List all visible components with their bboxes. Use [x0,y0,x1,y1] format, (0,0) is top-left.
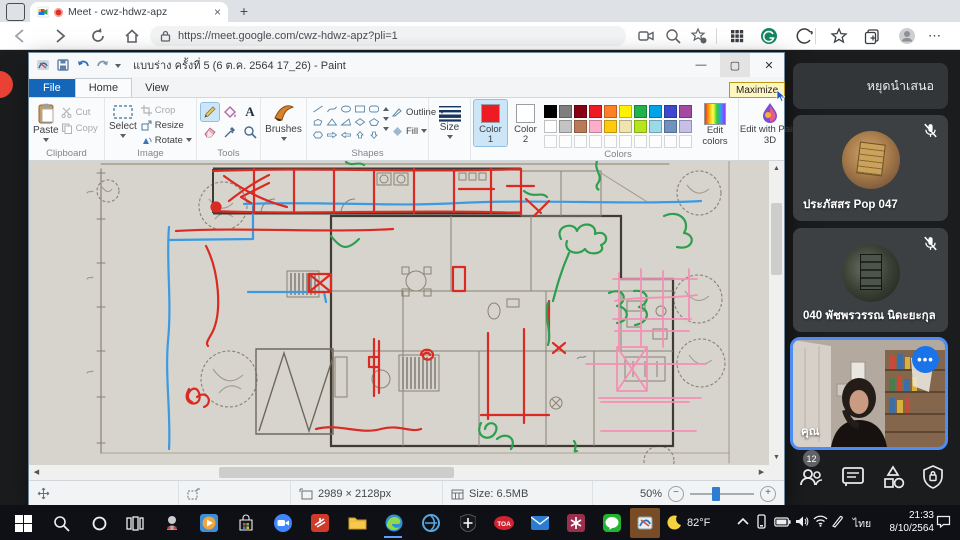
dimensions-icon [299,488,313,500]
file-explorer-icon[interactable] [342,508,372,538]
palette-empty-slot[interactable] [589,135,602,148]
selection-size-icon [187,488,201,500]
palette-color[interactable] [649,105,662,118]
select-button[interactable]: Select [109,100,137,147]
scroll-right-icon[interactable]: ▶ [754,465,769,480]
file-size: Size: 6.5MB [469,488,528,500]
activities-panel-icon[interactable] [878,462,908,492]
tray-chevron-icon[interactable] [737,517,749,527]
outline-icon [392,107,403,117]
group-colors: Color 1 Color 2 Colors Edit colors [471,98,739,160]
palette-color[interactable] [604,105,617,118]
fill-bucket-icon [223,105,237,119]
clock-tray-item[interactable]: 21:33 8/10/2564 [874,509,934,535]
group-brushes: Brushes [261,98,307,160]
paint-status-bar: 2989 × 2128px Size: 6.5MB 50% − + [29,480,784,506]
shape-right-arrow-icon[interactable] [325,129,338,141]
self-more-options-button[interactable]: ••• [912,346,939,373]
vertical-scrollbar[interactable]: ▲ ▼ [769,161,784,465]
host-controls-icon[interactable] [918,462,948,492]
tab-title: Meet - cwz-hdwz-apz [68,6,209,18]
color2-button[interactable]: Color 2 [509,100,542,146]
home-icon[interactable] [122,26,142,46]
mail-app-icon[interactable] [525,508,555,538]
floorplan-drawing [29,161,769,465]
palette-color[interactable] [589,120,602,133]
volume-tray-icon[interactable] [795,515,809,528]
vertical-scroll-thumb[interactable] [771,203,782,275]
language-indicator[interactable]: ไทย [849,515,875,532]
palette-color[interactable] [544,105,557,118]
shapes-label: Shapes [307,148,428,159]
paste-button[interactable]: Paste [33,100,59,142]
screen: { "browser": { "tab_title": "Meet - cwz-… [0,0,960,540]
browser-tab-bar: Meet - cwz-hdwz-apz × + [0,0,960,22]
palette-color[interactable] [619,120,632,133]
zoom-in-button[interactable]: + [760,486,776,502]
tab-close-icon[interactable]: × [214,6,221,18]
quick-access-caret-icon[interactable] [115,64,121,68]
cut-icon [61,107,73,118]
shape-oval-icon[interactable] [339,103,352,115]
color2-swatch [516,104,535,123]
paint3d-icon [761,102,779,124]
close-button[interactable]: ✕ [754,53,784,77]
palette-empty-slot[interactable] [574,135,587,148]
paint-app-icon [35,57,51,73]
line-app-icon[interactable] [597,508,627,538]
task-view-button[interactable] [120,508,150,538]
self-view-tile[interactable]: คุณ ••• [790,337,948,450]
tab-file[interactable]: File [29,79,75,97]
copy-button[interactable]: Copy [61,121,98,135]
media-player-icon[interactable] [194,508,224,538]
shapes-scroll-down-icon[interactable] [383,117,389,121]
lock-icon [160,30,171,42]
forward-icon[interactable] [50,26,70,46]
participant-name: 040 พัชพรวรรณ นิดะยะกุล [803,307,936,325]
shape-right-triangle-icon[interactable] [339,116,352,128]
resize-icon [141,120,152,131]
toolbar-divider [815,28,816,44]
zoom-slider-thumb[interactable] [712,487,720,501]
shape-triangle-icon[interactable] [325,116,338,128]
colors-label: Colors [544,149,692,160]
palette-empty-slot[interactable] [664,135,677,148]
brushes-icon [272,102,296,124]
favorites-settings-icon[interactable] [689,26,709,46]
pen-tray-icon[interactable] [831,515,844,528]
group-clipboard: Paste Cut Copy Clipboard [29,98,105,160]
group-paint3d: Edit with Paint 3D [739,98,801,160]
apps-grid-icon[interactable] [727,26,747,46]
palette-color[interactable] [544,120,557,133]
magnifier-tool[interactable] [241,123,259,141]
clock-time: 21:33 [874,509,934,522]
palette-color[interactable] [559,120,572,133]
scroll-up-icon[interactable]: ▲ [769,161,784,176]
shapes-grid [311,98,380,141]
toa-app-icon[interactable]: TOA [489,508,519,538]
horizontal-scroll-thumb[interactable] [219,467,454,478]
redo-icon[interactable] [95,57,111,73]
start-button[interactable] [8,508,38,538]
svg-text:TOA: TOA [497,521,511,528]
crop-icon [141,105,152,116]
file-size-section: Size: 6.5MB [443,481,593,506]
asterisk-app-icon[interactable] [561,508,591,538]
color1-button[interactable]: Color 1 [474,100,507,146]
undo-icon[interactable] [75,57,91,73]
magnifier-icon [243,125,257,139]
palette-empty-slot[interactable] [649,135,662,148]
battery-tray-icon[interactable] [774,517,791,527]
maximize-button[interactable]: ▢ [720,53,750,77]
tools-label: Tools [197,148,260,159]
temperature-label: 82°F [687,517,710,529]
palette-color[interactable] [574,105,587,118]
shape-rounded-rectangle-icon[interactable] [367,103,380,115]
palette-color[interactable] [574,120,587,133]
resize-button[interactable]: Resize [141,118,192,132]
palette-empty-slot[interactable] [559,135,572,148]
select-icon [112,103,134,121]
size-button[interactable]: Size [429,98,470,139]
palette-empty-slot[interactable] [634,135,647,148]
address-bar[interactable]: https://meet.google.com/cwz-hdwz-apz?pli… [150,26,626,46]
mic-off-icon [922,122,939,139]
paint-titlebar[interactable]: แบบร่าง ครั้งที่ 5 (6 ต.ค. 2564 17_26) -… [29,53,784,77]
color1-swatch [481,104,500,123]
selection-size-section [179,481,291,506]
action-center-icon[interactable] [936,515,951,528]
fill-tool[interactable] [221,103,239,121]
sketchup-icon[interactable] [305,508,335,538]
image-dimensions-section: 2989 × 2128px [291,481,443,506]
pencil-icon [203,105,217,119]
phone-tray-icon[interactable] [757,514,766,529]
group-tools: A Tools [197,98,261,160]
grammar-extension-icon[interactable] [759,26,779,46]
palette-empty-slot[interactable] [679,135,692,148]
shape-left-arrow-icon[interactable] [339,129,352,141]
palette-empty-slot[interactable] [544,135,557,148]
color-picker-tool[interactable] [221,123,239,141]
text-a-icon: A [245,104,254,120]
browser-menu-icon[interactable]: ⋯ [928,28,950,44]
group-size: Size [429,98,471,160]
palette-color[interactable] [664,105,677,118]
palette-color[interactable] [664,120,677,133]
scrollbar-corner [769,465,784,480]
paste-icon [37,103,55,125]
zoom-app-icon[interactable] [268,508,298,538]
horizontal-scrollbar[interactable]: ◀ ▶ [29,465,769,480]
palette-color[interactable] [619,105,632,118]
participant-avatar [842,131,900,189]
self-label: คุณ [801,423,819,441]
extension-c-icon[interactable] [795,26,815,46]
palette-color[interactable] [559,105,572,118]
fill-icon [392,126,403,136]
collections-icon[interactable] [862,26,882,46]
microsoft-store-icon[interactable] [231,508,261,538]
eyedropper-icon [223,125,237,139]
eraser-tool[interactable] [201,123,219,141]
image-label: Image [105,148,196,159]
text-tool[interactable]: A [241,103,259,121]
shape-polygon-icon[interactable] [311,116,324,128]
shape-down-arrow-icon[interactable] [367,129,380,141]
file-size-icon [451,488,464,500]
ribbon: Paste Cut Copy Clipboard Select Crop Res… [29,98,784,161]
zoom-level: 50% [640,488,662,500]
zoom-page-icon[interactable] [663,26,683,46]
chat-panel-icon[interactable] [838,462,868,492]
zoom-out-button[interactable]: − [668,486,684,502]
weather-tray-item[interactable]: 82°F [666,508,710,538]
shapes-scroll-up-icon[interactable] [383,107,389,111]
people-count-badge: 12 [803,450,820,467]
clock-date: 8/10/2564 [874,522,934,535]
shape-rectangle-icon[interactable] [353,103,366,115]
cursor-position-section [29,481,179,506]
rotate-button[interactable]: Rotate [141,133,192,147]
wifi-tray-icon[interactable] [813,515,828,527]
palette-empty-slot[interactable] [619,135,632,148]
recording-dot-icon [54,8,63,17]
moon-weather-icon [666,515,682,531]
tab-actions-icon[interactable] [6,3,25,21]
participant-tile[interactable]: ประภัสสร Pop 047 [793,115,948,221]
cortana-button[interactable] [84,508,114,538]
shape-curve-icon[interactable] [325,103,338,115]
tab-view[interactable]: View [132,79,182,97]
palette-color[interactable] [649,120,662,133]
edge-active-underline [384,536,402,538]
crop-button[interactable]: Crop [141,103,192,117]
toolbar-divider [716,28,717,44]
character-app-icon[interactable] [157,508,187,538]
size-icon [437,104,463,122]
shape-hexagon-icon[interactable] [311,129,324,141]
ribbon-tab-strip: File Home View [29,77,784,98]
save-icon[interactable] [55,57,71,73]
palette-color[interactable] [634,105,647,118]
meet-favicon [37,6,49,18]
url-text: https://meet.google.com/cwz-hdwz-apz?pli… [178,30,398,42]
shape-diamond-icon[interactable] [353,116,366,128]
edit-colors-button[interactable]: Edit colors [694,100,736,160]
participant-avatar [842,244,900,302]
reload-icon[interactable] [88,26,108,46]
shape-pentagon-icon[interactable] [367,116,380,128]
paint-canvas[interactable] [29,161,769,465]
shapes-more-icon[interactable] [383,127,389,131]
favorites-star-icon[interactable] [829,26,849,46]
mic-off-icon [922,235,939,252]
palette-color[interactable] [679,120,692,133]
scroll-down-icon[interactable]: ▼ [769,450,784,465]
clipboard-label: Clipboard [29,148,104,159]
pencil-tool[interactable] [201,103,219,121]
shapes-scroll [380,98,392,141]
zoom-controls: 50% − + [640,486,784,502]
tab-home[interactable]: Home [75,78,132,97]
edit-with-paint3d-button[interactable]: Edit with Paint 3D [739,98,801,146]
palette-empty-slot[interactable] [604,135,617,148]
edit-colors-icon [704,103,726,125]
brushes-button[interactable]: Brushes [261,98,306,141]
new-tab-button[interactable]: + [236,3,252,19]
tab-media-camera-icon[interactable] [636,26,656,46]
paint-taskbar-icon[interactable] [630,508,660,538]
mouse-cursor [776,90,786,102]
stop-presenting-button[interactable]: หยุดนำเสนอ [793,63,948,109]
stop-presenting-label: หยุดนำเสนอ [867,76,934,96]
browser-tab[interactable]: Meet - cwz-hdwz-apz × [30,2,228,22]
cursor-position-icon [37,487,50,500]
zoom-slider[interactable] [690,493,754,495]
participant-name: ประภัสสร Pop 047 [803,196,898,214]
eraser-icon [203,126,217,138]
copy-icon [61,123,73,134]
back-icon[interactable] [10,26,30,46]
minimize-button[interactable]: — [686,53,716,77]
cut-button[interactable]: Cut [61,105,98,119]
search-button[interactable] [46,508,76,538]
group-image: Select Crop Resize Rotate Image [105,98,197,160]
color-palette [544,100,692,148]
image-dimensions: 2989 × 2128px [318,488,391,500]
rotate-icon [141,135,152,146]
paint-window-title: แบบร่าง ครั้งที่ 5 (6 ต.ค. 2564 17_26) -… [133,56,682,74]
scroll-left-icon[interactable]: ◀ [29,465,44,480]
profile-avatar-icon[interactable] [897,26,917,46]
palette-color[interactable] [634,120,647,133]
palette-color[interactable] [679,105,692,118]
group-shapes: Outline Fill Shapes [307,98,429,160]
palette-color[interactable] [589,105,602,118]
shape-up-arrow-icon[interactable] [353,129,366,141]
edge-browser-icon[interactable] [379,508,409,538]
palette-color[interactable] [604,120,617,133]
participant-tile[interactable]: 040 พัชพรวรรณ นิดะยะกุล [793,228,948,332]
browser-swirl-icon[interactable] [416,508,446,538]
paint-window: แบบร่าง ครั้งที่ 5 (6 ต.ค. 2564 17_26) -… [28,52,785,507]
shape-line-icon[interactable] [311,103,324,115]
security-shield-icon[interactable] [453,508,483,538]
